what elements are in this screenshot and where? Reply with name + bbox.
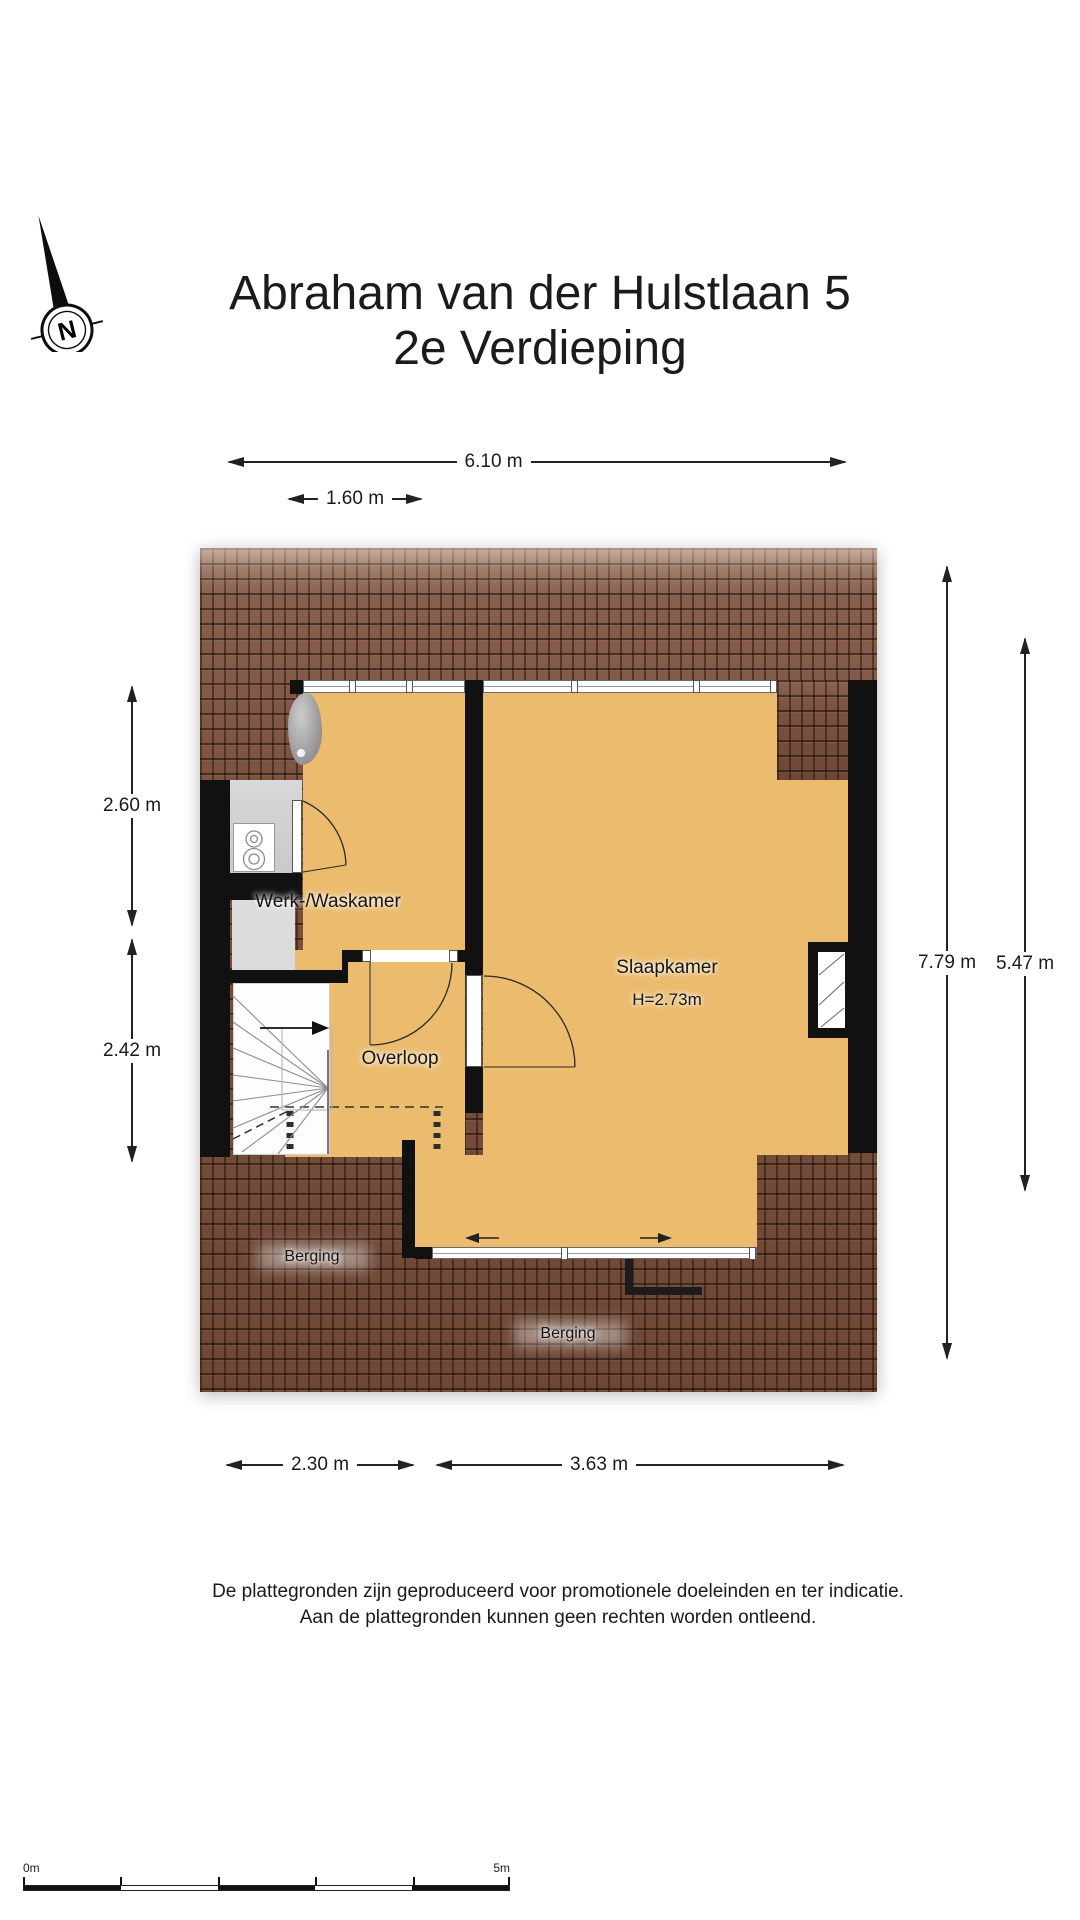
dimension-left-lower: 2.42 m xyxy=(126,938,138,1163)
scale-tick xyxy=(23,1877,25,1885)
arrowhead-up-icon xyxy=(942,565,952,582)
room-label-berging-left: Berging xyxy=(284,1248,339,1266)
arrowhead-left-icon xyxy=(287,494,304,504)
dimension-top-width: 6.10 m xyxy=(227,456,847,468)
floorplan-page: { "compass": { "label": "N" }, "title": … xyxy=(0,0,1080,1920)
dimension-label: 6.10 m xyxy=(457,450,531,474)
dimension-right-inner: 5.47 m xyxy=(1019,637,1031,1192)
sliding-window-arrows xyxy=(465,1233,672,1243)
scale-tick xyxy=(413,1877,415,1885)
room-label-werk-waskamer: Werk-/Waskamer xyxy=(255,891,401,913)
scale-bar: 0m 5m xyxy=(23,1877,510,1891)
arrowhead-right-icon xyxy=(830,457,847,467)
door-swing-arc-overloop xyxy=(370,962,452,1045)
dimension-label: 5.47 m xyxy=(988,952,1062,976)
dimension-label: 2.60 m xyxy=(95,794,169,818)
scale-bar-segments xyxy=(23,1885,510,1891)
dimension-left-upper: 2.60 m xyxy=(126,685,138,927)
door-swing-arc-slaapkamer xyxy=(484,976,575,1067)
dimension-top-dormer: 1.60 m xyxy=(287,493,423,505)
scale-end-label: 5m xyxy=(493,1861,510,1875)
dimension-line xyxy=(437,1464,843,1466)
scale-tick xyxy=(315,1877,317,1885)
scale-segment xyxy=(218,1886,315,1890)
room-label-slaapkamer-height: H=2.73m xyxy=(632,990,701,1010)
door-swing-arc-werk xyxy=(303,801,346,872)
staircase-treads-icon xyxy=(233,996,332,1154)
floorplan: Werk-/Waskamer Slaapkamer H=2.73m Overlo… xyxy=(200,548,877,1392)
arrowhead-up-icon xyxy=(127,938,137,955)
arrowhead-down-icon xyxy=(942,1343,952,1360)
arrowhead-down-icon xyxy=(127,1146,137,1163)
scale-tick xyxy=(120,1877,122,1885)
scale-segment xyxy=(412,1886,509,1890)
room-label-overloop: Overloop xyxy=(361,1048,438,1070)
dimension-label: 2.42 m xyxy=(95,1039,169,1063)
dimension-label: 3.63 m xyxy=(562,1453,636,1477)
dimension-line xyxy=(229,461,845,463)
scale-tick xyxy=(218,1877,220,1885)
scale-tick xyxy=(508,1877,510,1885)
arrowhead-left-icon xyxy=(435,1460,452,1470)
scale-segment xyxy=(121,1886,218,1890)
arrowhead-right-icon xyxy=(828,1460,845,1470)
dimension-bottom-right: 3.63 m xyxy=(435,1459,845,1471)
chimney-niche-hatch xyxy=(819,954,844,1027)
scale-segment xyxy=(24,1886,121,1890)
arrowhead-left-icon xyxy=(227,457,244,467)
arrowhead-down-icon xyxy=(127,910,137,927)
overhead-dashed-lines xyxy=(233,1107,443,1154)
scale-start-label: 0m xyxy=(23,1861,40,1875)
scale-segment xyxy=(315,1886,412,1890)
arrowhead-down-icon xyxy=(1020,1175,1030,1192)
disclaimer-line1: De plattegronden zijn geproduceerd voor … xyxy=(18,1581,1080,1603)
dimension-line xyxy=(1024,639,1026,1190)
room-label-slaapkamer: Slaapkamer xyxy=(616,957,717,979)
arrowhead-up-icon xyxy=(127,685,137,702)
dimension-right-full: 7.79 m xyxy=(941,565,953,1360)
page-title: Abraham van der Hulstlaan 5 2e Verdiepin… xyxy=(0,266,1080,376)
washer-drum-icon xyxy=(244,831,265,870)
room-label-berging-right: Berging xyxy=(540,1325,595,1343)
page-title-line2: 2e Verdieping xyxy=(0,321,1080,376)
arrowhead-up-icon xyxy=(1020,637,1030,654)
arrowhead-right-icon xyxy=(406,494,423,504)
dimension-label: 2.30 m xyxy=(283,1453,357,1477)
dimension-label: 1.60 m xyxy=(318,487,392,511)
dimension-bottom-left: 2.30 m xyxy=(225,1459,415,1471)
arrowhead-left-icon xyxy=(225,1460,242,1470)
dimension-label: 7.79 m xyxy=(910,951,984,975)
disclaimer-line2: Aan de plattegronden kunnen geen rechten… xyxy=(18,1607,1080,1629)
page-title-line1: Abraham van der Hulstlaan 5 xyxy=(0,266,1080,321)
arrowhead-right-icon xyxy=(398,1460,415,1470)
